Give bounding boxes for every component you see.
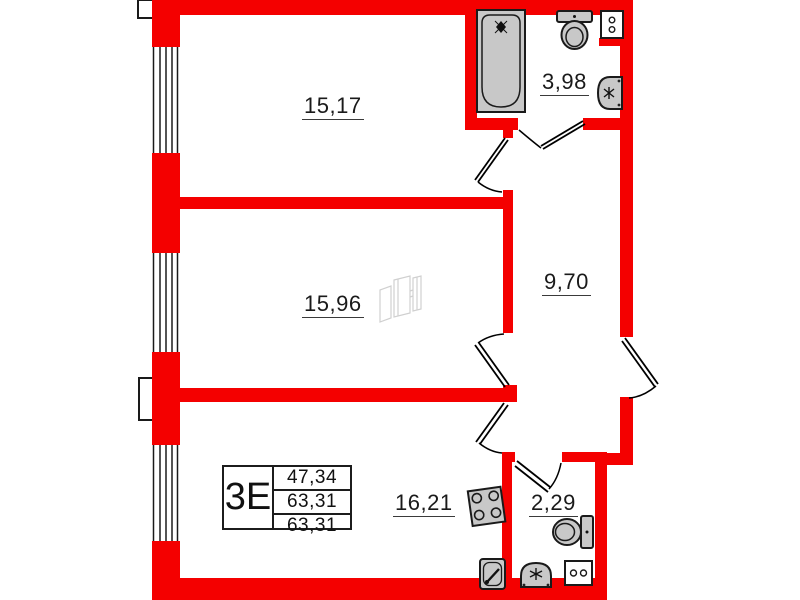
door-room-top xyxy=(475,138,508,192)
area-label-room-middle: 15,96 xyxy=(302,293,364,318)
area-label-hallway: 9,70 xyxy=(542,271,591,296)
vent-shaft-icon xyxy=(601,11,623,38)
unit-info-table: 3Е 47,34 63,31 63,31 xyxy=(222,465,352,530)
unit-total-area: 63,31 xyxy=(274,491,350,515)
door-room-middle xyxy=(475,334,509,387)
unit-area-values: 47,34 63,31 63,31 xyxy=(274,467,350,528)
area-label-room-top: 15,17 xyxy=(302,95,364,120)
window-icon-middle xyxy=(152,253,180,352)
door-wc xyxy=(515,461,561,492)
bathtub-icon xyxy=(477,10,525,112)
unit-type-label: 3Е xyxy=(224,467,274,528)
unit-full-area: 63,31 xyxy=(274,515,350,537)
floor-plan: 15,17 15,96 9,70 3,98 16,21 2,29 3Е 47,3… xyxy=(0,0,800,600)
window-icon-bottom xyxy=(152,445,180,541)
door-bathroom xyxy=(519,121,585,149)
sink-icon-bathroom xyxy=(598,77,622,109)
stove-icon xyxy=(468,487,506,526)
entrance-door xyxy=(622,338,658,398)
area-label-bathroom: 3,98 xyxy=(540,71,589,96)
toilet-icon-bathroom xyxy=(557,11,592,49)
toilet-icon-wc xyxy=(553,516,593,548)
unit-living-area: 47,34 xyxy=(274,467,350,491)
kitchen-sink-icon xyxy=(480,559,505,589)
wc-sink-icon xyxy=(521,563,551,587)
door-kitchen xyxy=(476,403,508,453)
window-icon-top xyxy=(152,47,180,153)
developer-logo-watermark xyxy=(380,276,421,322)
washing-machine-icon xyxy=(565,561,592,585)
area-label-kitchen: 16,21 xyxy=(393,492,455,517)
area-label-wc: 2,29 xyxy=(529,492,578,517)
